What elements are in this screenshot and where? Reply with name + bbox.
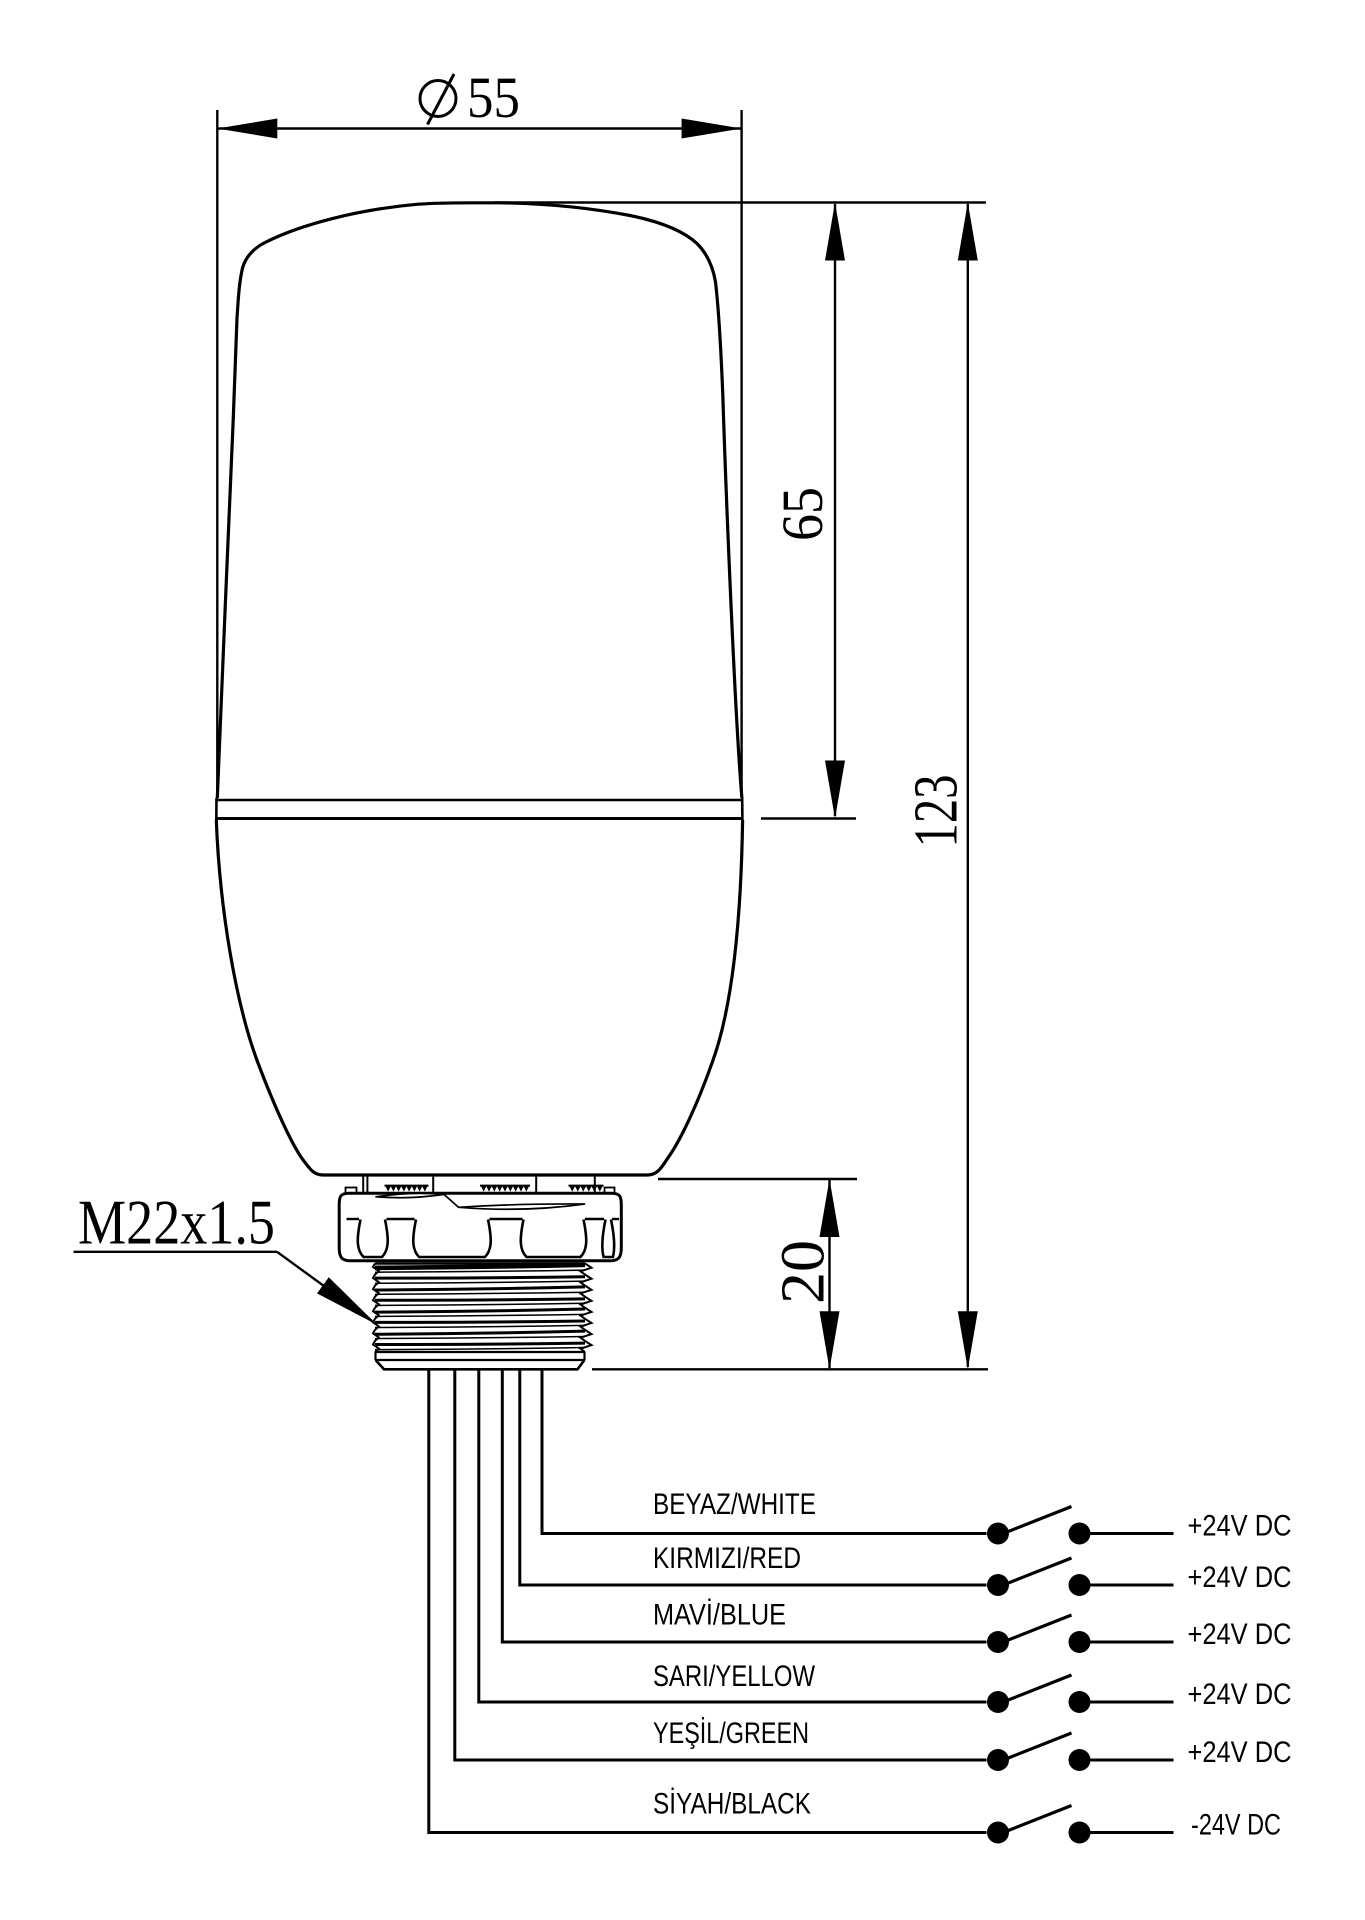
svg-text:+24V DC: +24V DC [1188, 1510, 1292, 1543]
svg-text:123: 123 [903, 775, 971, 848]
svg-text:+24V DC: +24V DC [1188, 1736, 1292, 1769]
svg-text:SARI/YELLOW: SARI/YELLOW [653, 1660, 816, 1693]
svg-text:20: 20 [770, 1240, 838, 1304]
svg-text:KIRMIZI/RED: KIRMIZI/RED [653, 1542, 801, 1575]
svg-text:+24V DC: +24V DC [1188, 1618, 1292, 1651]
svg-text:+24V DC: +24V DC [1188, 1561, 1292, 1594]
svg-text:-24V DC: -24V DC [1191, 1809, 1281, 1842]
svg-text:MAVİ/BLUE: MAVİ/BLUE [653, 1599, 786, 1632]
svg-text:65: 65 [770, 487, 835, 541]
svg-text:SİYAH/BLACK: SİYAH/BLACK [653, 1788, 811, 1821]
svg-text:+24V DC: +24V DC [1188, 1678, 1292, 1711]
svg-text:M22x1.5: M22x1.5 [78, 1187, 275, 1258]
svg-text:55: 55 [467, 65, 520, 130]
svg-text:YEŞİL/GREEN: YEŞİL/GREEN [653, 1717, 809, 1750]
svg-text:BEYAZ/WHITE: BEYAZ/WHITE [653, 1488, 816, 1521]
